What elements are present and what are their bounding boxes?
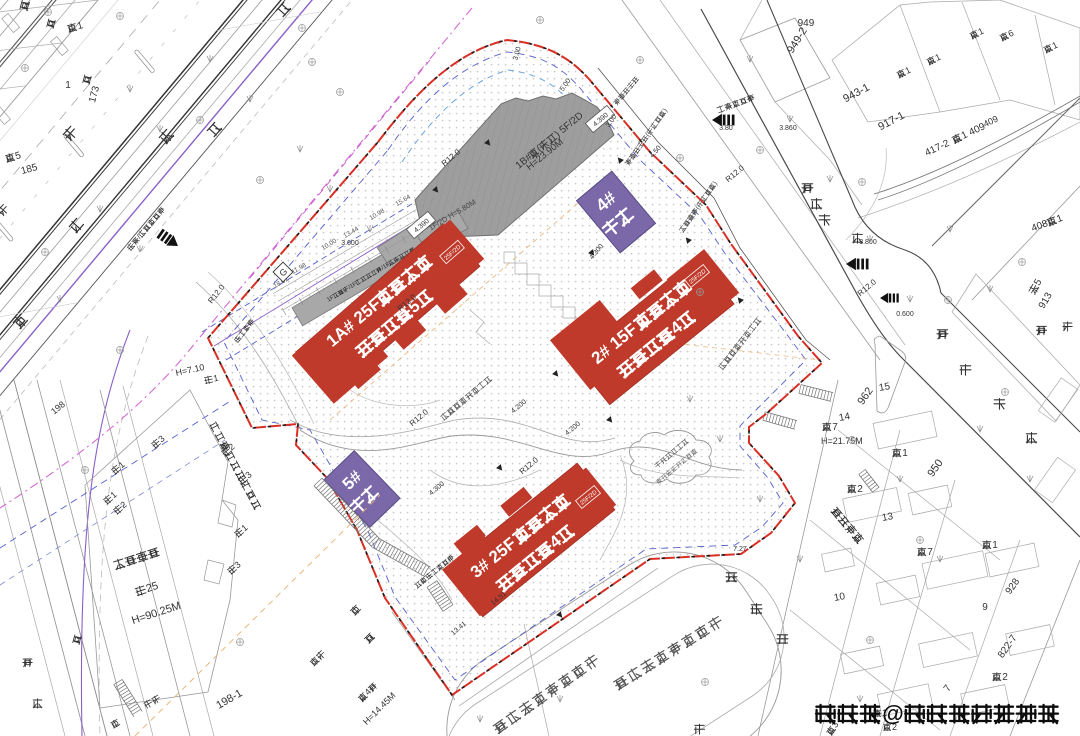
svg-text:1: 1 <box>902 448 908 459</box>
svg-text:2: 2 <box>1002 672 1008 683</box>
svg-text:0.600: 0.600 <box>896 311 914 318</box>
svg-text:1: 1 <box>992 540 998 551</box>
svg-text:9: 9 <box>982 602 988 613</box>
svg-text:H=21.75M: H=21.75M <box>821 436 863 446</box>
svg-text:1: 1 <box>65 80 71 91</box>
svg-text:2: 2 <box>857 484 863 495</box>
svg-text:7.27: 7.27 <box>733 546 747 553</box>
svg-text:3.600: 3.600 <box>341 240 359 247</box>
svg-text:7: 7 <box>927 547 933 558</box>
svg-text:3.800: 3.800 <box>859 239 877 246</box>
svg-text:949: 949 <box>798 18 815 29</box>
svg-text:7: 7 <box>832 422 838 433</box>
svg-text:3.860: 3.860 <box>779 125 797 132</box>
svg-text:3.80: 3.80 <box>719 125 733 132</box>
svg-text:@: @ <box>882 701 903 726</box>
